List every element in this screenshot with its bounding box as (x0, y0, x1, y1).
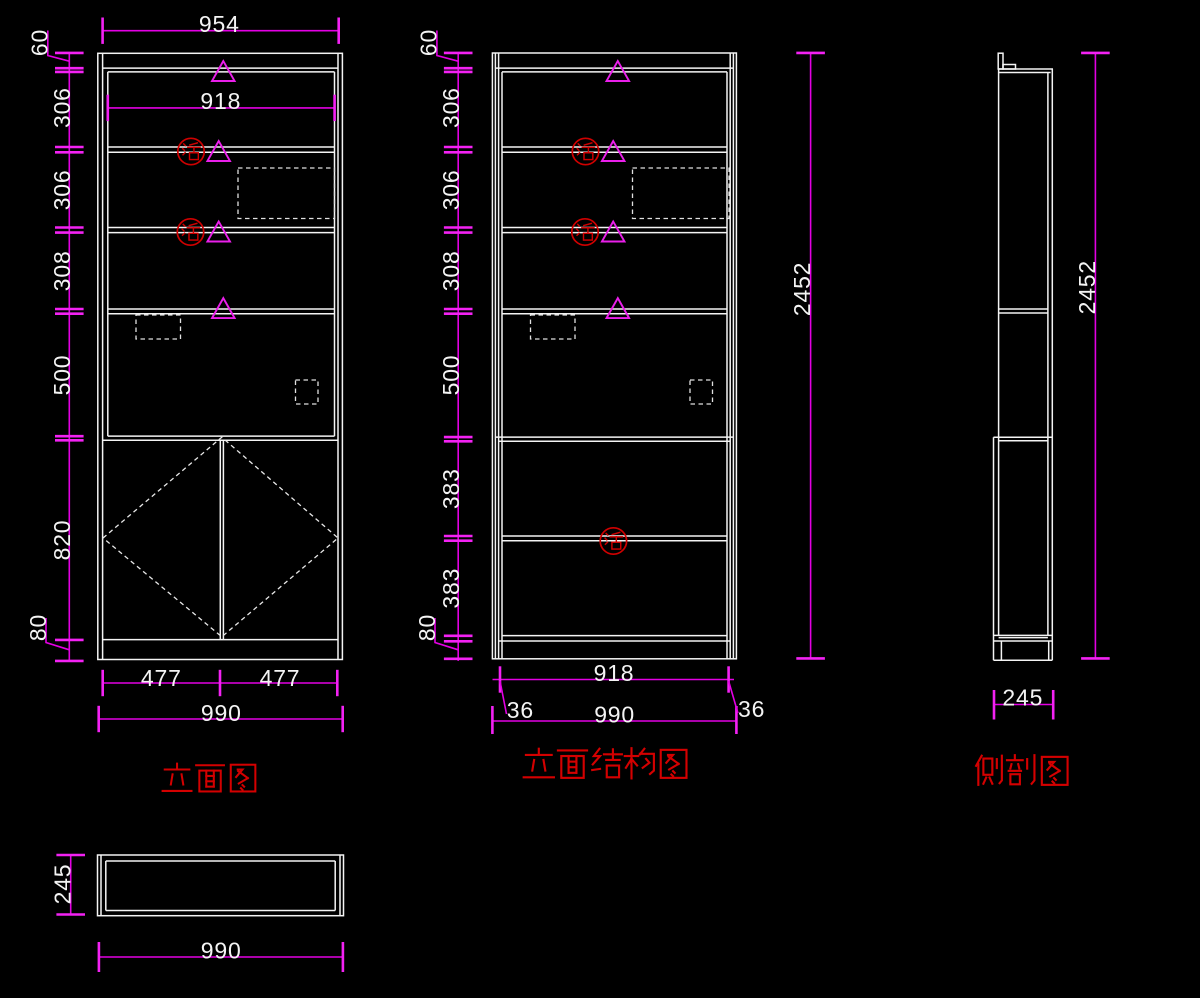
svg-text:80: 80 (414, 614, 440, 641)
svg-text:990: 990 (594, 701, 635, 727)
svg-text:500: 500 (49, 355, 75, 396)
svg-text:308: 308 (438, 250, 464, 291)
svg-text:245: 245 (49, 864, 75, 905)
svg-text:308: 308 (49, 250, 75, 291)
svg-text:2452: 2452 (789, 262, 815, 316)
svg-text:2452: 2452 (1074, 260, 1100, 314)
svg-text:477: 477 (141, 665, 182, 691)
svg-text:306: 306 (438, 170, 464, 211)
svg-text:60: 60 (416, 29, 442, 56)
svg-text:60: 60 (26, 29, 52, 56)
svg-text:383: 383 (438, 468, 464, 509)
svg-text:477: 477 (260, 665, 301, 691)
svg-text:245: 245 (1002, 685, 1043, 711)
svg-text:306: 306 (49, 170, 75, 211)
svg-text:954: 954 (199, 11, 240, 37)
svg-text:306: 306 (49, 87, 75, 128)
svg-text:500: 500 (438, 355, 464, 396)
svg-text:918: 918 (200, 88, 241, 114)
svg-text:990: 990 (201, 700, 242, 726)
svg-text:80: 80 (25, 614, 51, 641)
svg-text:36: 36 (738, 696, 765, 722)
svg-text:820: 820 (49, 520, 75, 561)
svg-text:990: 990 (201, 937, 242, 963)
svg-text:383: 383 (438, 568, 464, 609)
svg-text:306: 306 (438, 87, 464, 128)
svg-text:36: 36 (507, 697, 534, 723)
svg-text:918: 918 (594, 660, 635, 686)
